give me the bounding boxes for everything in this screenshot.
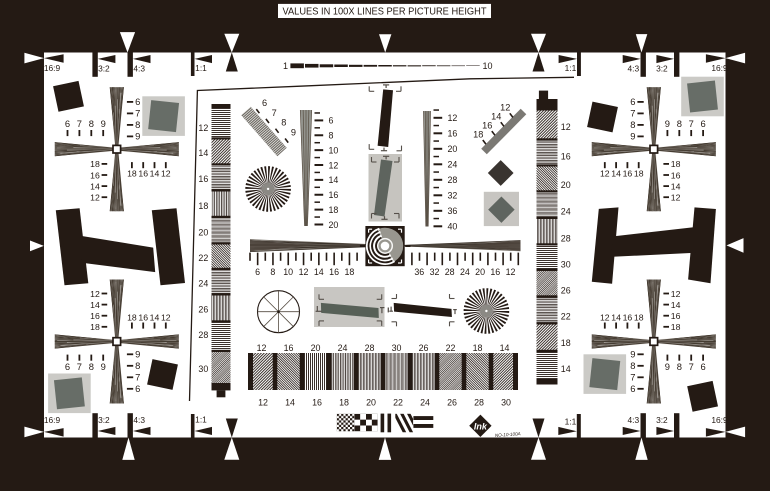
svg-text:12: 12 (600, 313, 610, 323)
svg-text:9: 9 (135, 131, 140, 142)
svg-text:18: 18 (634, 169, 644, 179)
svg-text:22: 22 (561, 312, 571, 322)
svg-text:9: 9 (291, 128, 296, 138)
svg-text:7: 7 (135, 372, 140, 383)
svg-text:9: 9 (630, 131, 635, 142)
svg-text:6: 6 (329, 116, 334, 126)
svg-text:20: 20 (561, 180, 571, 190)
svg-text:18: 18 (473, 343, 483, 353)
svg-text:28: 28 (445, 267, 455, 277)
svg-text:24: 24 (561, 206, 571, 216)
svg-text:12: 12 (500, 103, 510, 113)
svg-text:22: 22 (393, 397, 403, 407)
svg-text:14: 14 (611, 169, 621, 179)
svg-text:12: 12 (198, 123, 208, 133)
svg-text:14: 14 (491, 112, 501, 122)
svg-text:16: 16 (623, 169, 633, 179)
svg-text:7: 7 (77, 118, 82, 129)
svg-text:24: 24 (198, 279, 208, 289)
svg-text:18: 18 (90, 322, 100, 332)
svg-text:14: 14 (671, 300, 681, 310)
svg-text:18: 18 (329, 205, 339, 215)
svg-text:8: 8 (281, 118, 286, 128)
svg-text:12: 12 (299, 267, 309, 277)
svg-text:20: 20 (311, 343, 321, 353)
svg-text:12: 12 (448, 113, 458, 123)
svg-text:16: 16 (90, 311, 100, 321)
svg-text:9: 9 (101, 361, 106, 372)
svg-text:4:3: 4:3 (133, 63, 145, 73)
svg-text:16: 16 (448, 129, 458, 139)
svg-text:18: 18 (671, 322, 681, 332)
svg-text:16:9: 16:9 (711, 415, 728, 425)
svg-text:VALUES IN 100X LINES PER PICTU: VALUES IN 100X LINES PER PICTURE HEIGHT (283, 7, 487, 18)
svg-text:12: 12 (90, 289, 100, 299)
svg-text:8: 8 (89, 118, 94, 129)
svg-text:16: 16 (138, 313, 148, 323)
svg-text:8: 8 (89, 361, 94, 372)
svg-text:6: 6 (700, 118, 705, 129)
svg-text:12: 12 (600, 169, 610, 179)
svg-text:28: 28 (448, 175, 458, 185)
svg-text:14: 14 (611, 313, 621, 323)
svg-text:14: 14 (150, 313, 160, 323)
svg-text:36: 36 (448, 206, 458, 216)
svg-text:7: 7 (77, 361, 82, 372)
svg-text:18: 18 (671, 159, 681, 169)
svg-text:30: 30 (501, 397, 511, 407)
svg-text:7: 7 (689, 118, 694, 129)
svg-text:14: 14 (90, 181, 100, 191)
svg-text:1:1: 1:1 (195, 63, 207, 73)
svg-text:12: 12 (671, 193, 681, 203)
svg-text:16: 16 (671, 311, 681, 321)
svg-text:22: 22 (198, 253, 208, 263)
svg-text:18: 18 (127, 313, 137, 323)
svg-text:14: 14 (90, 300, 100, 310)
svg-text:7: 7 (689, 361, 694, 372)
svg-text:18: 18 (339, 397, 349, 407)
svg-text:16: 16 (312, 397, 322, 407)
svg-text:14: 14 (285, 397, 295, 407)
svg-text:40: 40 (448, 222, 458, 232)
svg-text:6: 6 (135, 383, 140, 394)
svg-text:16: 16 (138, 169, 148, 179)
svg-text:16: 16 (198, 174, 208, 184)
svg-text:18: 18 (344, 267, 354, 277)
svg-text:9: 9 (665, 361, 670, 372)
svg-text:7: 7 (630, 108, 635, 119)
svg-text:6: 6 (255, 267, 260, 277)
svg-text:8: 8 (270, 267, 275, 277)
svg-text:16: 16 (623, 313, 633, 323)
svg-text:20: 20 (448, 144, 458, 154)
svg-text:20: 20 (366, 397, 376, 407)
svg-text:18: 18 (473, 129, 483, 139)
svg-text:14: 14 (198, 148, 208, 158)
svg-text:22: 22 (446, 343, 456, 353)
svg-text:6: 6 (700, 361, 705, 372)
svg-text:16: 16 (490, 267, 500, 277)
svg-text:20: 20 (198, 228, 208, 238)
svg-text:12: 12 (671, 289, 681, 299)
svg-text:9: 9 (135, 349, 140, 360)
svg-text:18: 18 (634, 313, 644, 323)
svg-text:9: 9 (101, 118, 106, 129)
svg-text:12: 12 (258, 397, 268, 407)
svg-text:36: 36 (414, 267, 424, 277)
svg-text:18: 18 (90, 159, 100, 169)
svg-text:6: 6 (65, 118, 70, 129)
svg-text:16: 16 (561, 151, 571, 161)
svg-text:3:2: 3:2 (656, 63, 668, 73)
svg-text:30: 30 (198, 364, 208, 374)
svg-text:6: 6 (262, 98, 267, 108)
svg-text:1:1: 1:1 (195, 414, 207, 424)
svg-text:6: 6 (630, 96, 635, 107)
svg-text:12: 12 (329, 160, 339, 170)
svg-text:12: 12 (257, 343, 267, 353)
svg-text:3:2: 3:2 (98, 63, 110, 73)
svg-text:28: 28 (365, 343, 375, 353)
svg-text:14: 14 (329, 175, 339, 185)
svg-text:20: 20 (475, 267, 485, 277)
svg-text:32: 32 (448, 191, 458, 201)
svg-text:8: 8 (135, 360, 140, 371)
svg-text:28: 28 (561, 233, 571, 243)
svg-text:14: 14 (314, 267, 324, 277)
svg-text:4:3: 4:3 (627, 63, 639, 73)
svg-text:9: 9 (665, 118, 670, 129)
svg-text:8: 8 (135, 119, 140, 130)
svg-text:14: 14 (671, 181, 681, 191)
svg-text:30: 30 (392, 343, 402, 353)
svg-text:3:2: 3:2 (98, 415, 110, 425)
svg-text:10: 10 (283, 267, 293, 277)
svg-text:24: 24 (338, 343, 348, 353)
svg-text:26: 26 (419, 343, 429, 353)
svg-text:10: 10 (482, 61, 492, 71)
svg-text:12: 12 (506, 267, 516, 277)
svg-text:30: 30 (561, 260, 571, 270)
svg-text:14: 14 (500, 343, 510, 353)
svg-text:16: 16 (482, 120, 492, 130)
svg-text:1:1: 1:1 (565, 63, 577, 73)
svg-text:26: 26 (561, 286, 571, 296)
svg-text:16:9: 16:9 (711, 63, 728, 73)
svg-text:18: 18 (561, 338, 571, 348)
svg-text:16: 16 (329, 267, 339, 277)
svg-text:16:9: 16:9 (44, 415, 61, 425)
svg-text:6: 6 (135, 96, 140, 107)
svg-text:7: 7 (135, 108, 140, 119)
svg-text:4:3: 4:3 (627, 415, 639, 425)
svg-text:26: 26 (447, 397, 457, 407)
svg-text:24: 24 (448, 160, 458, 170)
svg-text:24: 24 (420, 397, 430, 407)
svg-text:18: 18 (127, 169, 137, 179)
svg-text:14: 14 (561, 364, 571, 374)
svg-text:4:3: 4:3 (133, 415, 145, 425)
svg-text:6: 6 (65, 361, 70, 372)
svg-text:9: 9 (630, 349, 635, 360)
svg-text:20: 20 (329, 220, 339, 230)
svg-text:16:9: 16:9 (44, 63, 61, 73)
svg-text:1:1: 1:1 (565, 417, 577, 427)
svg-text:6: 6 (630, 383, 635, 394)
svg-text:3:2: 3:2 (656, 415, 668, 425)
svg-text:8: 8 (630, 360, 635, 371)
svg-text:7: 7 (630, 372, 635, 383)
svg-text:26: 26 (198, 304, 208, 314)
svg-text:7: 7 (272, 108, 277, 118)
svg-text:14: 14 (150, 169, 160, 179)
svg-text:1: 1 (283, 61, 288, 71)
svg-text:16: 16 (671, 170, 681, 180)
svg-text:8: 8 (677, 361, 682, 372)
svg-text:8: 8 (677, 118, 682, 129)
svg-text:16: 16 (284, 343, 294, 353)
svg-text:Ink: Ink (474, 422, 488, 432)
svg-text:8: 8 (329, 131, 334, 141)
svg-text:16: 16 (90, 170, 100, 180)
svg-text:12: 12 (90, 193, 100, 203)
svg-text:10: 10 (329, 145, 339, 155)
svg-text:12: 12 (561, 122, 571, 132)
svg-text:28: 28 (474, 397, 484, 407)
svg-text:18: 18 (198, 201, 208, 211)
svg-text:28: 28 (198, 330, 208, 340)
svg-text:12: 12 (161, 313, 171, 323)
svg-text:8: 8 (630, 119, 635, 130)
svg-text:12: 12 (161, 169, 171, 179)
svg-text:32: 32 (430, 267, 440, 277)
svg-text:16: 16 (329, 190, 339, 200)
svg-text:24: 24 (460, 267, 470, 277)
